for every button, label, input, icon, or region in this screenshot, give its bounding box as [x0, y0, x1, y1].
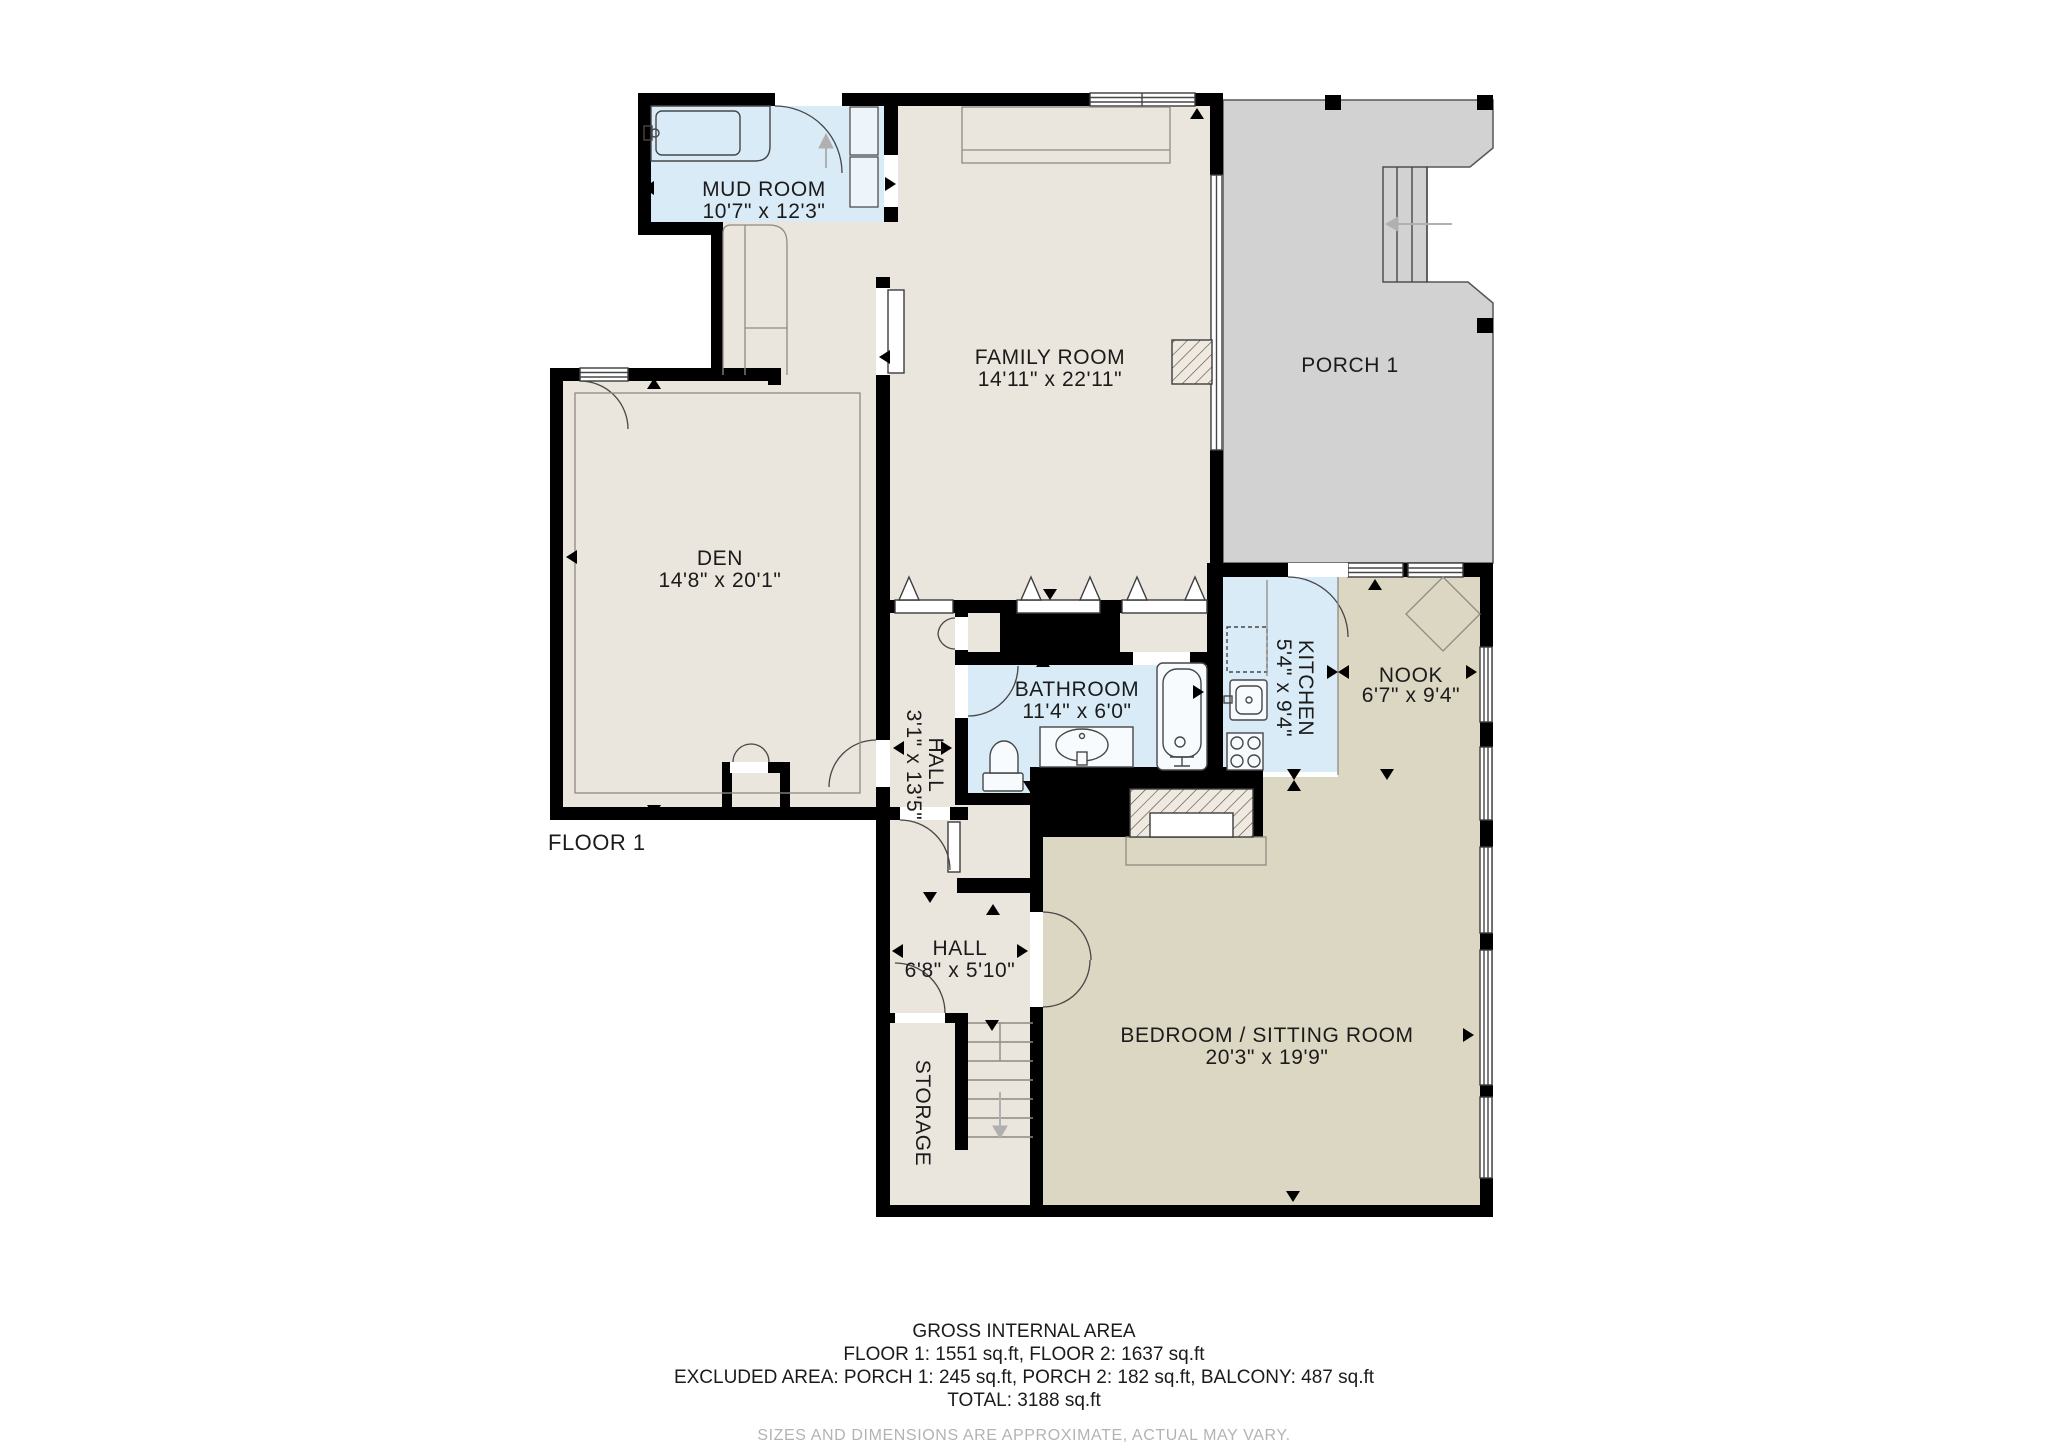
stove-icon	[1227, 733, 1263, 770]
area-summary-excluded: EXCLUDED AREA: PORCH 1: 245 sq.ft, PORCH…	[0, 1366, 2048, 1389]
sink-icon	[1040, 727, 1133, 767]
closet-shelf	[850, 107, 878, 155]
window	[1480, 847, 1492, 933]
bedroom-label: BEDROOM / SITTING ROOM	[1120, 1024, 1413, 1047]
bathtub-icon	[1157, 663, 1207, 770]
pocket-door-panel	[888, 290, 904, 373]
mud-room-dims: 10'7" x 12'3"	[703, 200, 826, 223]
bathroom-dims: 11'4" x 6'0"	[1022, 700, 1131, 723]
kitchen-sink-icon	[1224, 680, 1267, 720]
floor-plan-page: MUD ROOM 10'7" x 12'3" FAMILY ROOM 14'11…	[0, 0, 2048, 1448]
porch-label: PORCH 1	[1301, 354, 1399, 377]
window	[1090, 93, 1195, 106]
storage-label: STORAGE	[911, 1060, 934, 1167]
bathroom-label: BATHROOM	[1015, 678, 1140, 701]
area-summary-floors: FLOOR 1: 1551 sq.ft, FLOOR 2: 1637 sq.ft	[0, 1343, 2048, 1366]
den-floor	[550, 368, 884, 820]
hall-upper-dims: 3'1" x 13'5"	[902, 710, 925, 821]
window	[1348, 563, 1403, 577]
porch-floor	[1223, 100, 1493, 563]
family-room-label: FAMILY ROOM	[975, 346, 1126, 369]
nook-dims: 6'7" x 9'4"	[1362, 684, 1460, 707]
corridor-floor	[711, 222, 884, 381]
kitchen-label: KITCHEN	[1294, 640, 1317, 736]
floor-title: FLOOR 1	[548, 830, 646, 855]
hall-upper-label: HALL	[924, 738, 947, 793]
fireplace-icon	[1172, 340, 1212, 384]
den-dims: 14'8" x 20'1"	[659, 569, 782, 592]
area-summary-title: GROSS INTERNAL AREA	[0, 1320, 2048, 1343]
mud-room-label: MUD ROOM	[702, 178, 826, 201]
window	[1480, 1097, 1492, 1178]
disclaimer: SIZES AND DIMENSIONS ARE APPROXIMATE, AC…	[0, 1424, 2048, 1447]
kitchen-dims: 5'4" x 9'4"	[1272, 639, 1295, 737]
window	[1480, 747, 1492, 820]
family-room-dims: 14'11" x 22'11"	[978, 368, 1122, 391]
closet-cell-b	[1120, 613, 1207, 652]
closet-cell-c	[968, 805, 1030, 878]
den-label: DEN	[697, 547, 743, 570]
window	[1480, 647, 1492, 722]
bedroom-dims: 20'3" x 19'9"	[1206, 1046, 1329, 1069]
entry-opening	[775, 93, 842, 106]
window	[1480, 950, 1492, 1085]
floor-plan-drawing: MUD ROOM 10'7" x 12'3" FAMILY ROOM 14'11…	[0, 0, 2048, 1448]
sliding-door	[1211, 175, 1222, 450]
window	[1408, 563, 1463, 577]
hall-lower-dims: 6'8" x 5'10"	[905, 959, 1016, 982]
area-summary: GROSS INTERNAL AREA FLOOR 1: 1551 sq.ft,…	[0, 1320, 2048, 1447]
closet-cell-a	[968, 613, 1000, 652]
closet-shelf	[850, 157, 878, 207]
hall-lower-label: HALL	[933, 937, 988, 960]
area-summary-total: TOTAL: 3188 sq.ft	[0, 1389, 2048, 1412]
window	[580, 368, 628, 381]
